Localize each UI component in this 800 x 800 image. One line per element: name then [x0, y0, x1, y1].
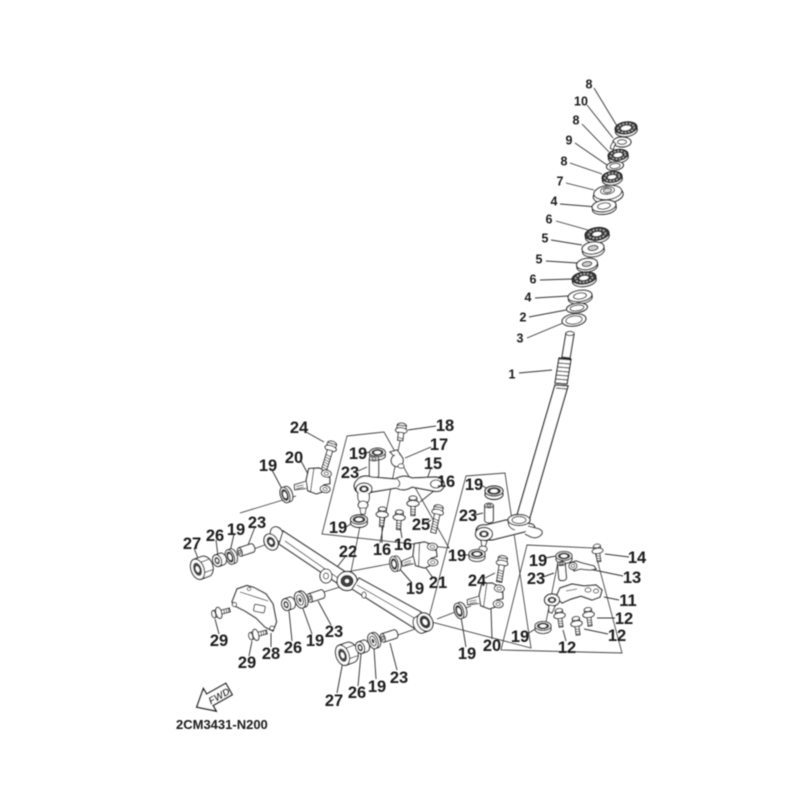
svg-text:22: 22: [339, 543, 357, 561]
svg-text:23: 23: [325, 623, 343, 641]
svg-text:4: 4: [551, 195, 558, 209]
svg-text:19: 19: [306, 632, 324, 650]
svg-text:19: 19: [349, 445, 367, 463]
svg-text:26: 26: [206, 527, 224, 545]
svg-text:10: 10: [574, 95, 588, 109]
svg-text:27: 27: [183, 535, 201, 553]
svg-text:16: 16: [373, 541, 391, 559]
svg-text:23: 23: [341, 464, 359, 482]
svg-text:27: 27: [325, 692, 343, 710]
svg-text:23: 23: [248, 514, 266, 532]
svg-text:8: 8: [586, 78, 593, 92]
svg-text:16: 16: [394, 536, 412, 554]
svg-text:29: 29: [238, 654, 256, 672]
svg-text:11: 11: [619, 592, 636, 610]
svg-text:16: 16: [437, 473, 455, 491]
svg-text:20: 20: [285, 449, 303, 467]
svg-text:3: 3: [517, 332, 524, 346]
svg-text:19: 19: [329, 519, 347, 537]
svg-text:1: 1: [509, 368, 516, 382]
svg-text:26: 26: [348, 684, 366, 702]
svg-text:23: 23: [390, 669, 408, 687]
svg-text:5: 5: [536, 253, 543, 267]
svg-text:12: 12: [615, 610, 633, 628]
svg-text:7: 7: [557, 175, 564, 189]
svg-text:24: 24: [290, 419, 309, 437]
svg-text:29: 29: [210, 632, 228, 650]
svg-text:19: 19: [406, 580, 424, 598]
svg-text:17: 17: [430, 436, 448, 454]
svg-text:20: 20: [483, 637, 501, 655]
svg-text:19: 19: [511, 628, 529, 646]
svg-text:23: 23: [527, 570, 545, 588]
svg-text:13: 13: [623, 569, 641, 587]
svg-text:19: 19: [465, 476, 483, 494]
svg-text:19: 19: [259, 457, 277, 475]
svg-text:2: 2: [520, 311, 527, 325]
svg-text:19: 19: [227, 521, 245, 539]
svg-text:26: 26: [284, 639, 302, 657]
svg-text:2CM3431-N200: 2CM3431-N200: [176, 717, 268, 732]
svg-text:5: 5: [542, 232, 549, 246]
svg-text:21: 21: [429, 574, 447, 592]
svg-text:8: 8: [561, 155, 568, 169]
svg-text:12: 12: [558, 639, 576, 657]
svg-text:9: 9: [566, 134, 573, 148]
svg-text:8: 8: [573, 114, 580, 128]
svg-text:6: 6: [530, 273, 537, 287]
svg-text:28: 28: [262, 645, 280, 663]
svg-text:24: 24: [468, 572, 487, 590]
svg-text:19: 19: [448, 547, 466, 565]
svg-text:14: 14: [628, 549, 647, 567]
svg-text:15: 15: [424, 455, 442, 473]
svg-text:19: 19: [368, 678, 386, 696]
svg-text:25: 25: [412, 516, 430, 534]
svg-text:18: 18: [436, 417, 454, 435]
svg-text:6: 6: [546, 213, 553, 227]
svg-text:23: 23: [459, 507, 477, 525]
svg-text:19: 19: [458, 645, 476, 663]
svg-text:12: 12: [608, 627, 626, 645]
svg-text:19: 19: [529, 552, 547, 570]
svg-text:4: 4: [525, 291, 532, 305]
